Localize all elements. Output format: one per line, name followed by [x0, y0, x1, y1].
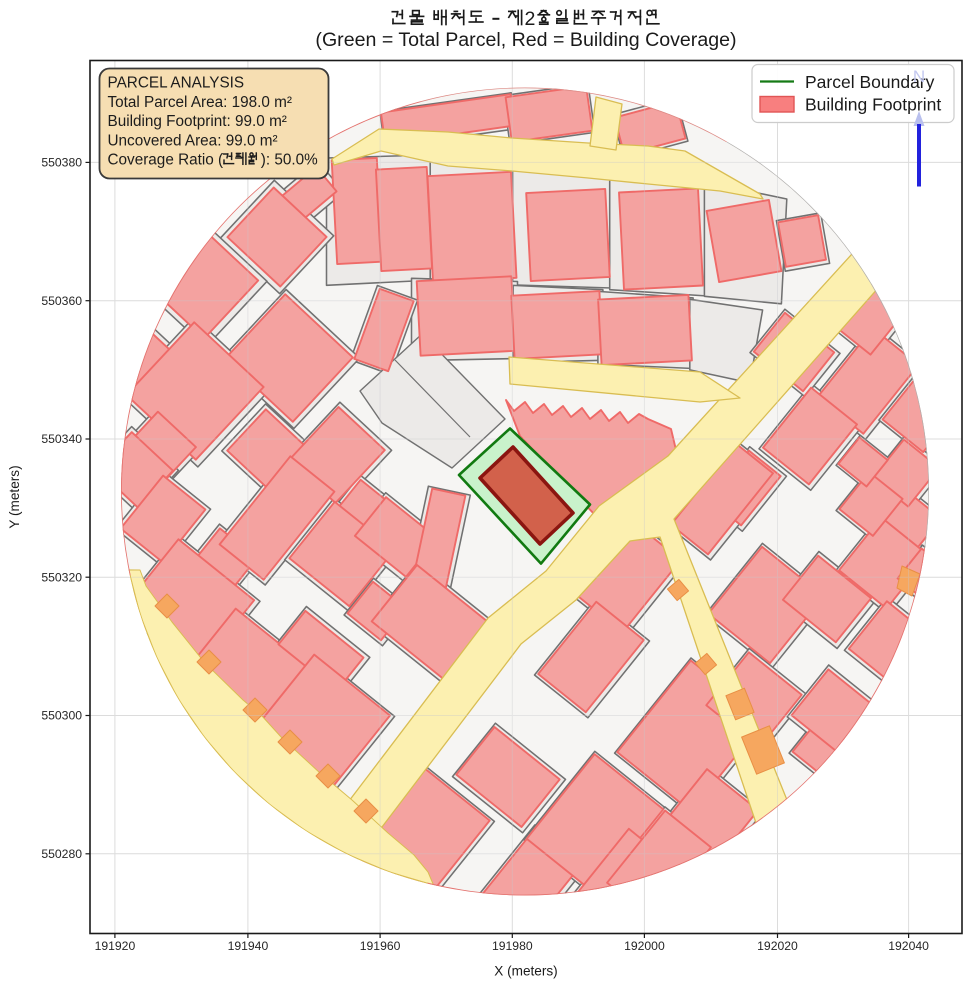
svg-text:191980: 191980	[492, 939, 533, 953]
svg-text:Uncovered Area: 99.0 m²: Uncovered Area: 99.0 m²	[108, 132, 278, 149]
svg-text:550280: 550280	[41, 847, 82, 861]
svg-text:(Green = Total Parcel, Red = B: (Green = Total Parcel, Red = Building Co…	[315, 29, 736, 51]
svg-text:550360: 550360	[41, 294, 82, 308]
svg-text:Y (meters): Y (meters)	[7, 465, 22, 528]
svg-text:X (meters): X (meters)	[494, 964, 557, 979]
svg-text:550340: 550340	[41, 432, 82, 446]
svg-text:Building Footprint: Building Footprint	[805, 95, 941, 115]
svg-text:191920: 191920	[95, 939, 136, 953]
svg-text:): 50.0%: ): 50.0%	[261, 152, 318, 169]
svg-text:N: N	[913, 67, 925, 86]
svg-text:Building Footprint: 99.0 m²: Building Footprint: 99.0 m²	[108, 113, 287, 130]
svg-text:Coverage Ratio (: Coverage Ratio (	[108, 152, 224, 169]
svg-text:192020: 192020	[757, 939, 798, 953]
svg-text:550380: 550380	[41, 156, 82, 170]
svg-text:Total Parcel Area: 198.0 m²: Total Parcel Area: 198.0 m²	[108, 94, 293, 111]
svg-text:192040: 192040	[888, 939, 929, 953]
svg-text:550300: 550300	[41, 709, 82, 723]
svg-text:2: 2	[525, 8, 536, 30]
svg-text:192000: 192000	[624, 939, 665, 953]
svg-text:PARCEL ANALYSIS: PARCEL ANALYSIS	[108, 75, 245, 92]
svg-text:191940: 191940	[228, 939, 269, 953]
svg-text:191960: 191960	[360, 939, 401, 953]
svg-text:550320: 550320	[41, 570, 82, 584]
